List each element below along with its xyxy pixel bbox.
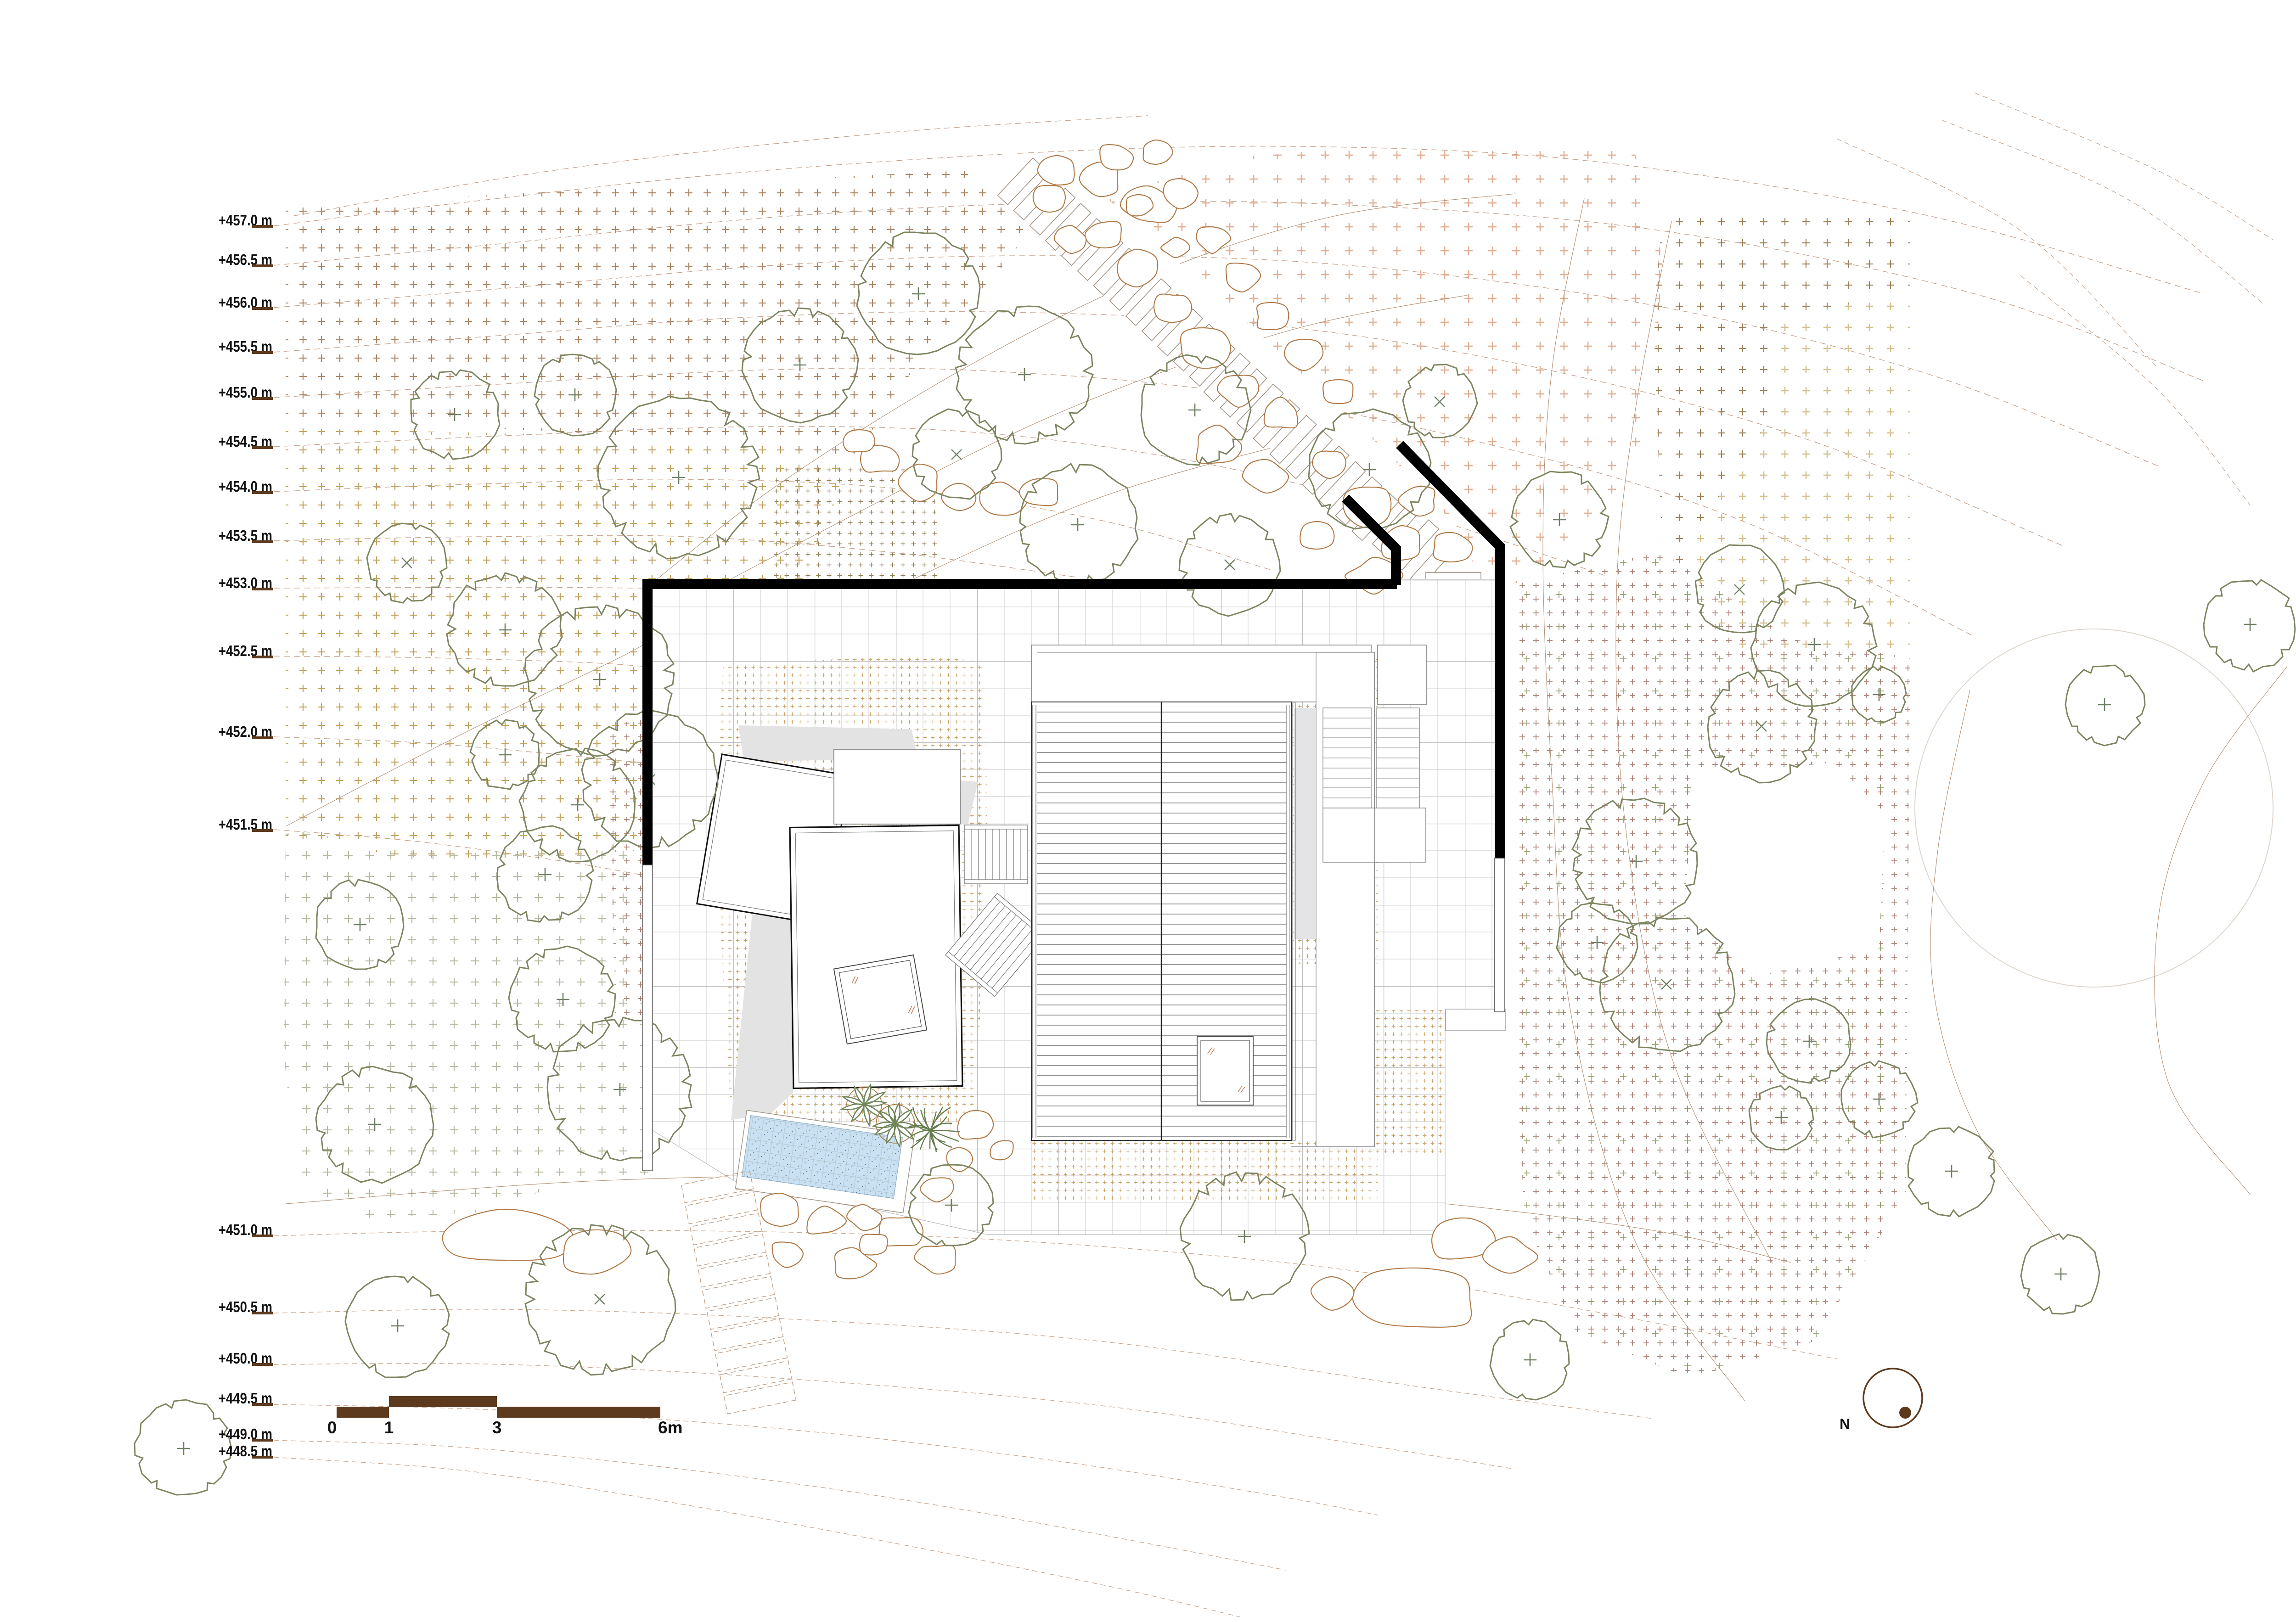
svg-text:N: N	[1840, 1416, 1850, 1432]
svg-text:1: 1	[384, 1418, 394, 1437]
svg-text:6m: 6m	[658, 1418, 682, 1437]
svg-text:3: 3	[492, 1418, 502, 1437]
svg-text:0: 0	[327, 1418, 337, 1437]
